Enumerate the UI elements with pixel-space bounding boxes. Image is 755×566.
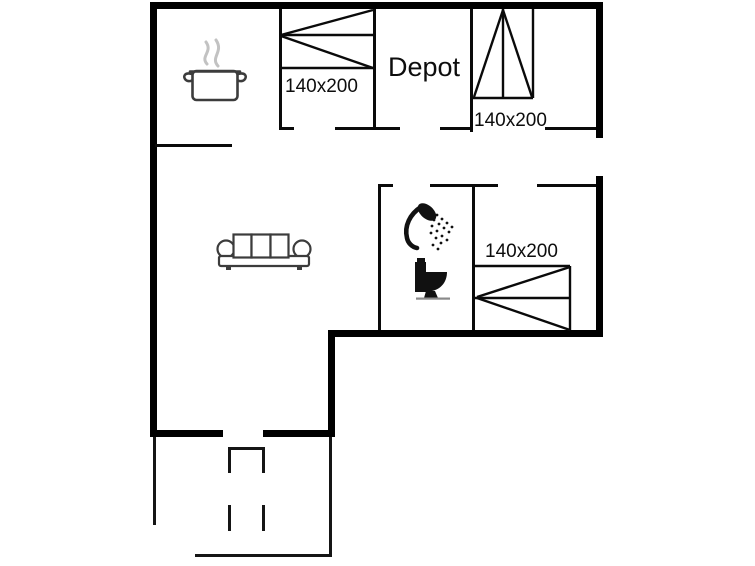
bed-symbol-bottom-right (475, 266, 570, 330)
floor-plan: Depot 140x200 140x200 140x200 (0, 0, 755, 566)
toilet-icon (415, 258, 450, 300)
symbols-layer (0, 0, 755, 566)
shower-spray (430, 214, 454, 251)
cooking-pot-icon (184, 40, 245, 100)
room-label-depot: Depot (388, 54, 460, 81)
shower-icon (406, 200, 453, 251)
bed-symbol-top-left (281, 10, 374, 68)
sofa-icon (218, 235, 311, 271)
steam-wisp (215, 40, 218, 66)
bed-symbol-top-right (473, 9, 533, 98)
bed-size-bottom-right: 140x200 (485, 242, 558, 261)
bed-size-top-left: 140x200 (285, 77, 358, 96)
bed-size-top-right: 140x200 (474, 111, 547, 130)
steam-wisp (205, 42, 208, 64)
